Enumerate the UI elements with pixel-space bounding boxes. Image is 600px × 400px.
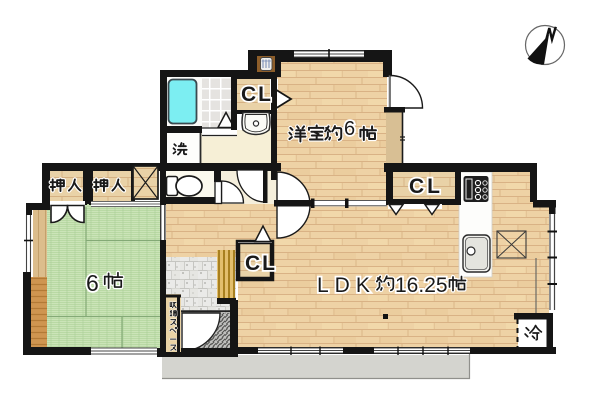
svg-text:16.25: 16.25 <box>395 274 448 297</box>
svg-text:6: 6 <box>86 270 99 296</box>
svg-text:CL: CL <box>241 83 273 106</box>
svg-text:CL: CL <box>409 175 443 198</box>
svg-text:CL: CL <box>245 252 277 275</box>
svg-text:LDK: LDK <box>317 274 376 297</box>
svg-text:6: 6 <box>344 118 355 140</box>
